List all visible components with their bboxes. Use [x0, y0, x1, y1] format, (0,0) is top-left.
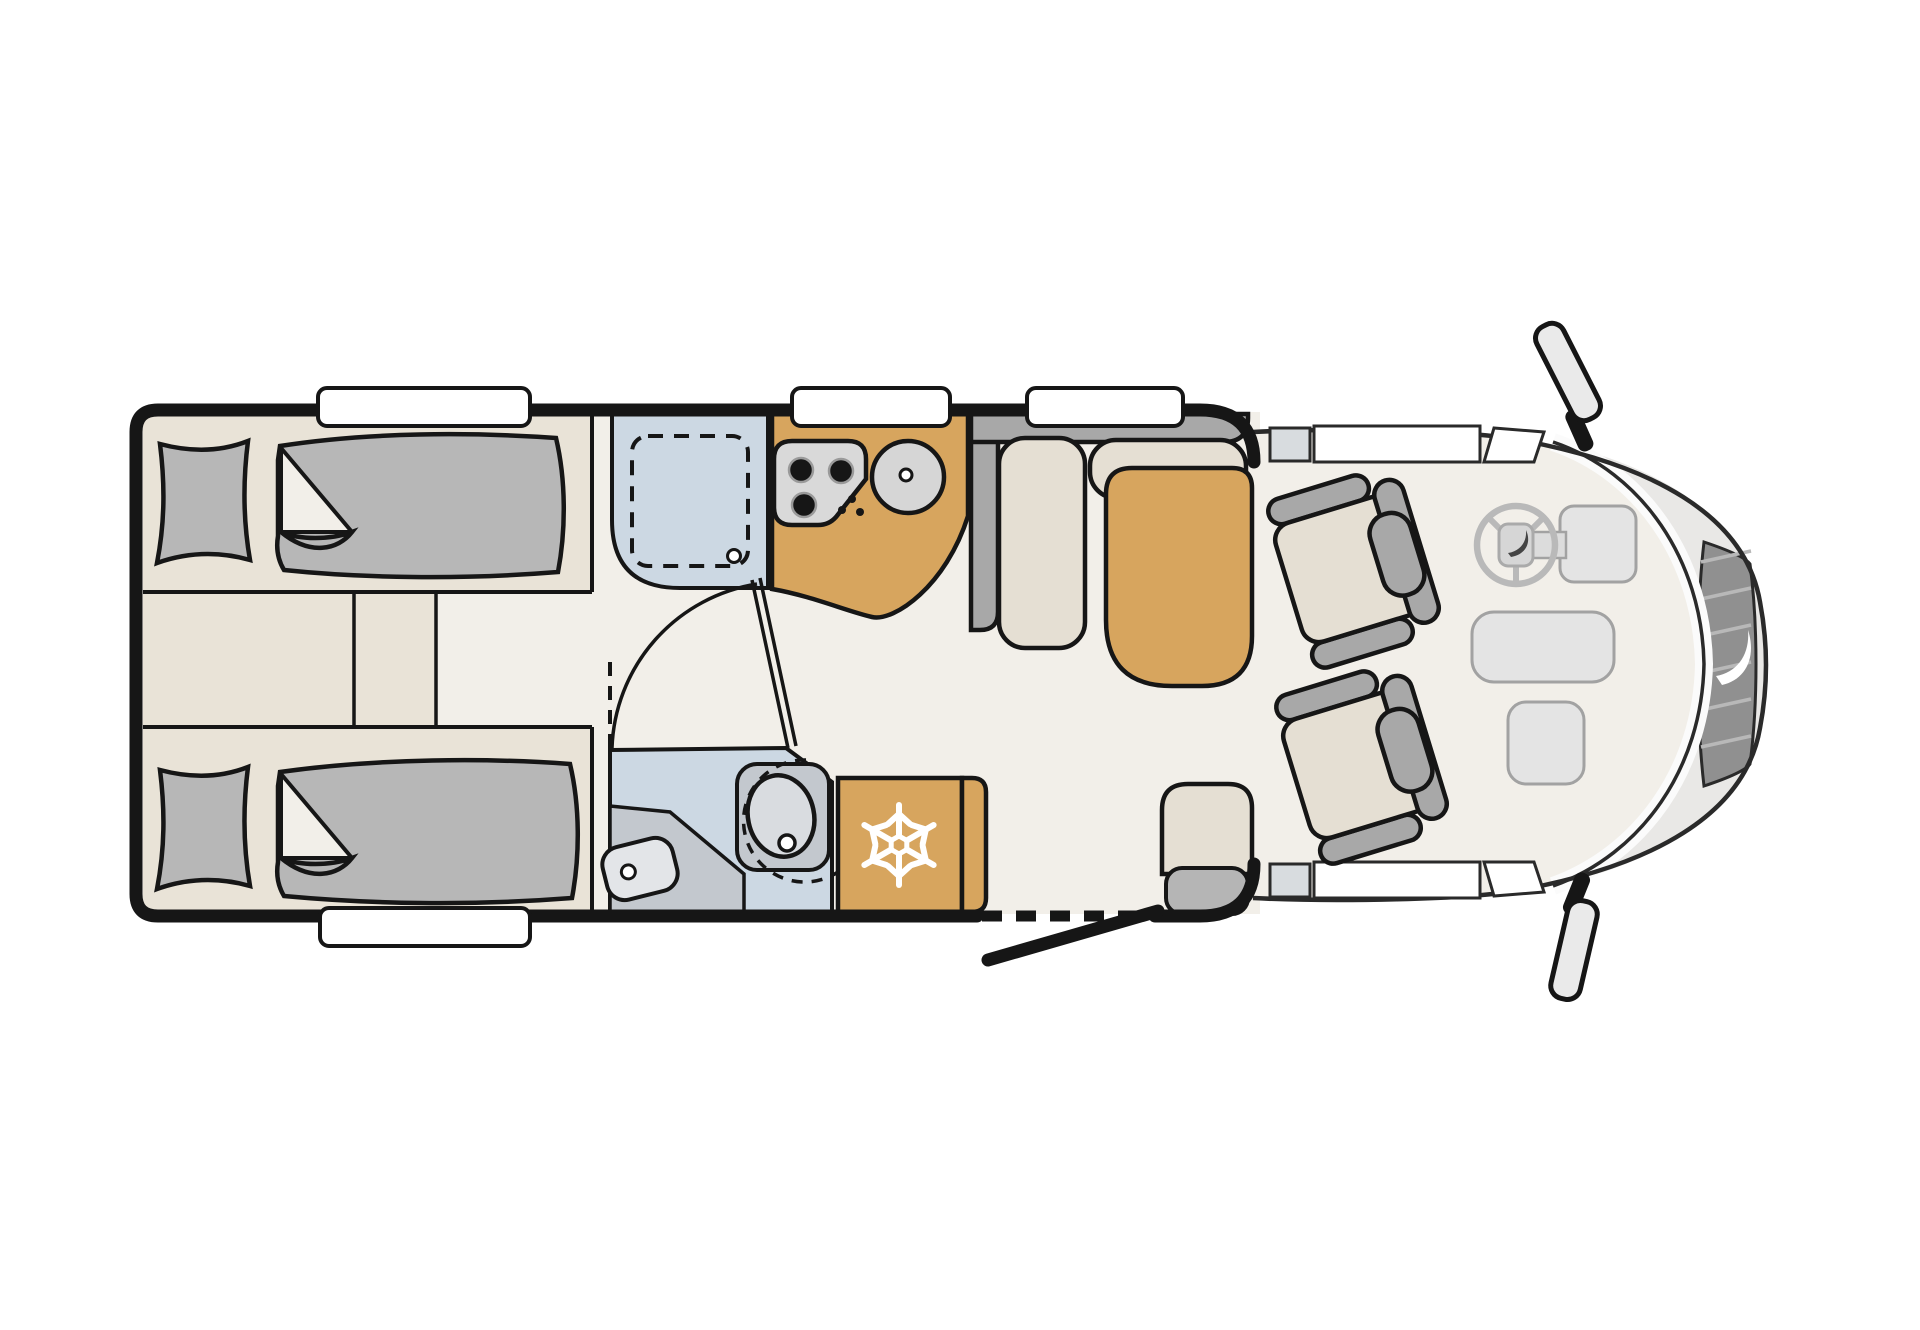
cab-side-windows-top: [1270, 426, 1544, 462]
dinette-table: [1106, 468, 1252, 686]
window-top-rear: [318, 388, 530, 426]
window-bottom-rear: [320, 908, 530, 946]
entry-step-sideboard: [1162, 784, 1252, 914]
motorhome-floorplan: [0, 0, 1920, 1330]
window-top-dinette: [1027, 388, 1183, 426]
window-top-kitchen: [792, 388, 950, 426]
floorplan-canvas: [0, 0, 1920, 1330]
shower-drain: [728, 550, 741, 563]
twin-bed-bottom: [157, 760, 578, 903]
cab-side-windows-bottom: [1270, 862, 1544, 898]
sink-icon: [872, 441, 944, 513]
twin-bed-top: [157, 434, 564, 577]
shower-cubicle: [612, 414, 768, 588]
pillow-bottom: [157, 767, 250, 889]
pillow-top: [157, 441, 250, 563]
fridge: [838, 778, 986, 912]
bed-steps-aisle: [143, 592, 436, 727]
swivel-washbasin: [737, 760, 838, 882]
bathroom: [599, 748, 838, 912]
